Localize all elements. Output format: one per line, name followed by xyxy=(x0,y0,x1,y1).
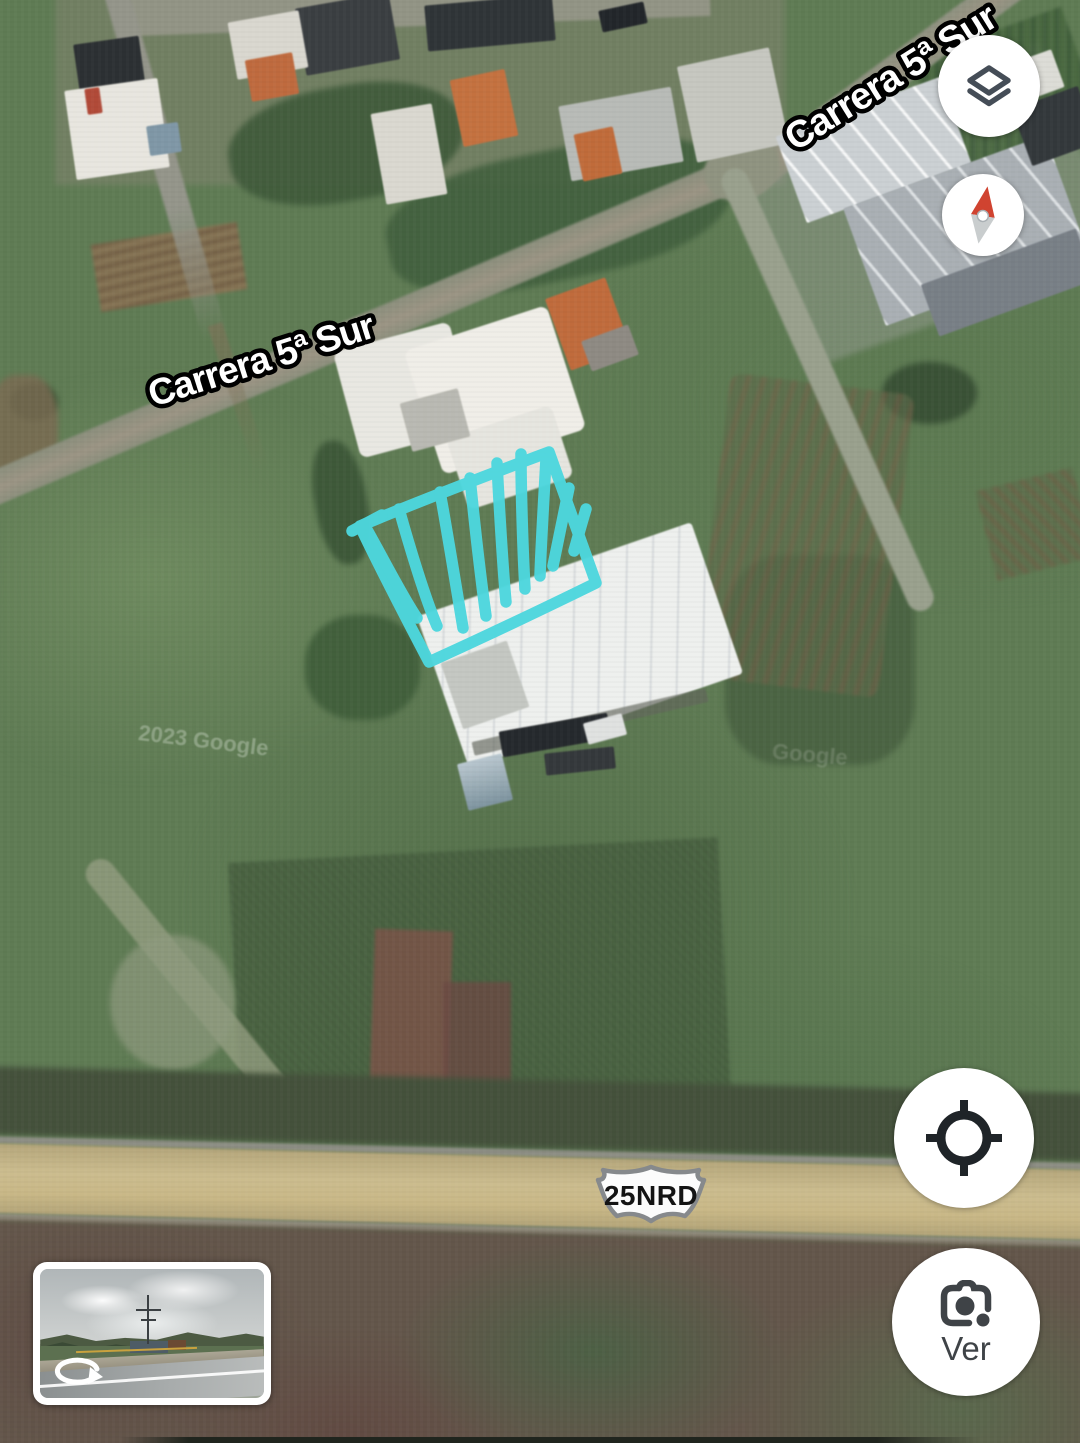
compass-icon xyxy=(955,181,1010,249)
building xyxy=(677,47,789,162)
street-view-ver-button[interactable]: Ver xyxy=(892,1248,1040,1396)
layers-icon xyxy=(962,59,1016,113)
my-location-crosshair-icon xyxy=(925,1099,1003,1177)
sv-clouds xyxy=(40,1269,264,1344)
rotate-view-icon xyxy=(50,1354,106,1390)
satellite-map[interactable]: 2023 Google Google Carrera 5ª Sur Carrer… xyxy=(0,0,1080,1443)
terrain-trees xyxy=(305,615,420,720)
terrain-light-blob xyxy=(110,935,235,1070)
route-shield: 25NRD xyxy=(592,1163,710,1227)
sv-building xyxy=(130,1341,168,1353)
lens-camera-icon xyxy=(937,1280,995,1330)
ver-button-label: Ver xyxy=(941,1332,991,1365)
sv-antenna-crossbar xyxy=(136,1309,161,1311)
route-shield-text: 25NRD xyxy=(604,1180,698,1211)
layers-button[interactable] xyxy=(938,35,1040,137)
street-view-photo xyxy=(40,1269,264,1398)
building xyxy=(146,122,182,156)
sv-antenna-crossbar xyxy=(141,1319,157,1321)
building xyxy=(245,52,300,102)
compass-button[interactable] xyxy=(942,174,1024,256)
bottom-dark-strip xyxy=(120,1437,980,1443)
street-view-thumbnail[interactable] xyxy=(33,1262,271,1405)
my-location-button[interactable] xyxy=(894,1068,1034,1208)
